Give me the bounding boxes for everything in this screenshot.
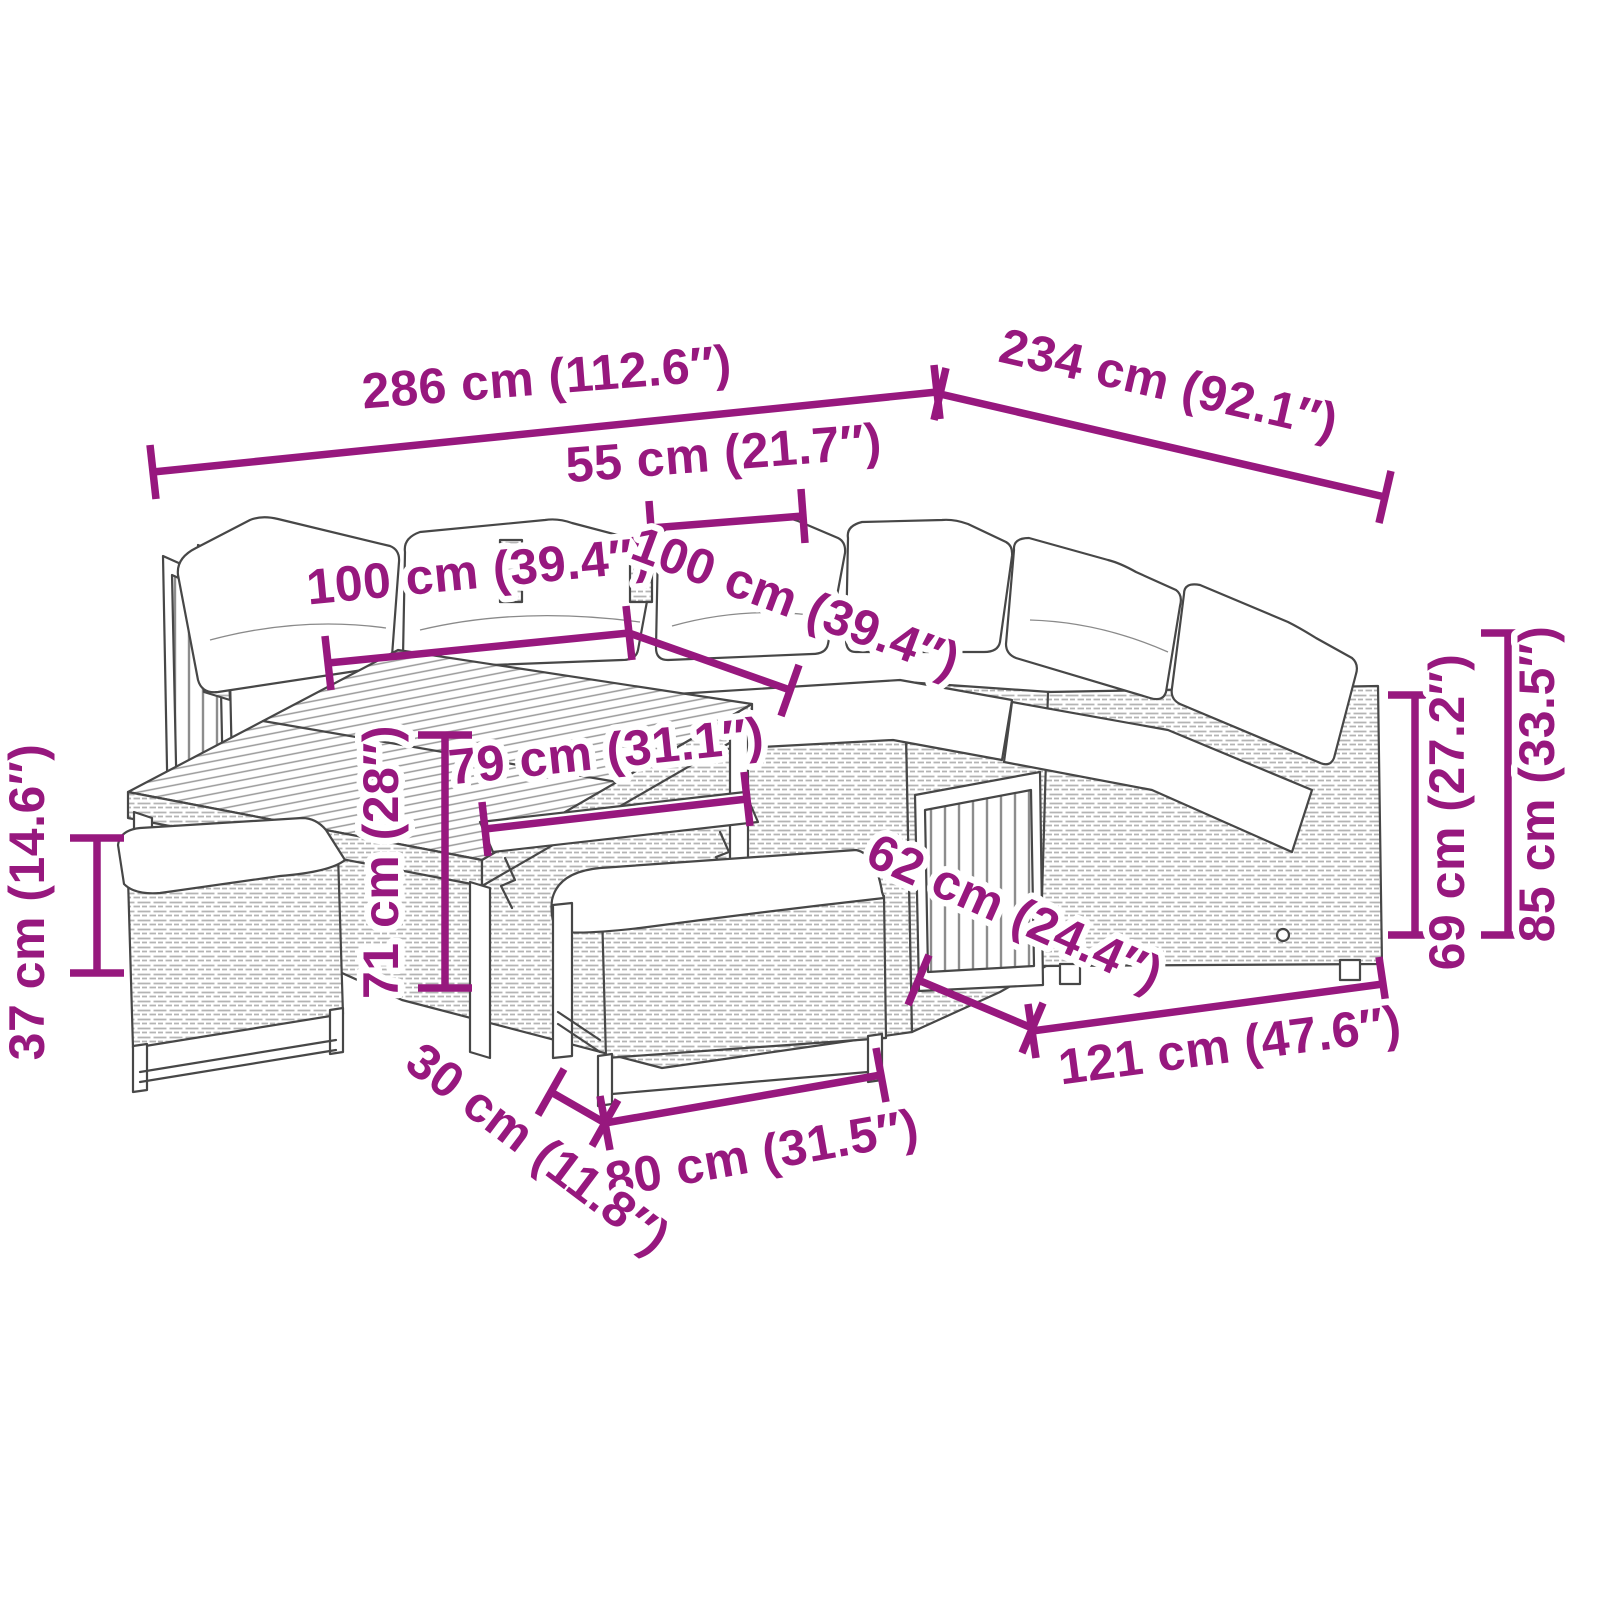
sofa-foot — [1340, 960, 1360, 980]
dim-label: 121 cm (47.6″) — [1055, 995, 1404, 1096]
back-pillow — [1006, 538, 1181, 699]
dimension-stool-height-37: 37 cm (14.6″) — [0, 744, 124, 1061]
dim-label: 37 cm (14.6″) — [0, 744, 55, 1061]
dim-label: 71 cm (28″) — [353, 725, 409, 999]
product-dimension-diagram: 286 cm (112.6″) 234 cm (92.1″) 55 cm (21… — [0, 0, 1600, 1600]
dim-tick — [538, 1069, 564, 1115]
dim-tick — [876, 1048, 886, 1102]
rattan-button-detail — [1277, 929, 1289, 941]
dimension-total-height-85: 85 cm (33.5″) — [1481, 626, 1565, 943]
dim-tick — [150, 445, 156, 499]
stool — [118, 818, 345, 1092]
dimension-back-height-69: 69 cm (27.2″) — [1388, 654, 1475, 971]
bench-frame-post — [553, 903, 572, 1058]
table-leg-front — [470, 882, 490, 1058]
stool-leg — [133, 1044, 147, 1092]
stool-rail — [140, 1040, 336, 1082]
dim-label: 69 cm (27.2″) — [1419, 654, 1475, 971]
dim-label: 234 cm (92.1″) — [994, 317, 1343, 449]
dim-label: 286 cm (112.6″) — [360, 335, 734, 420]
dim-label: 85 cm (33.5″) — [1509, 626, 1565, 943]
diagram-canvas: 286 cm (112.6″) 234 cm (92.1″) 55 cm (21… — [0, 0, 1600, 1600]
dim-tick — [801, 489, 805, 543]
dim-tick — [1028, 1004, 1036, 1058]
dimension-total-depth: 234 cm (92.1″) — [934, 317, 1391, 523]
stool-leg — [330, 1008, 343, 1054]
